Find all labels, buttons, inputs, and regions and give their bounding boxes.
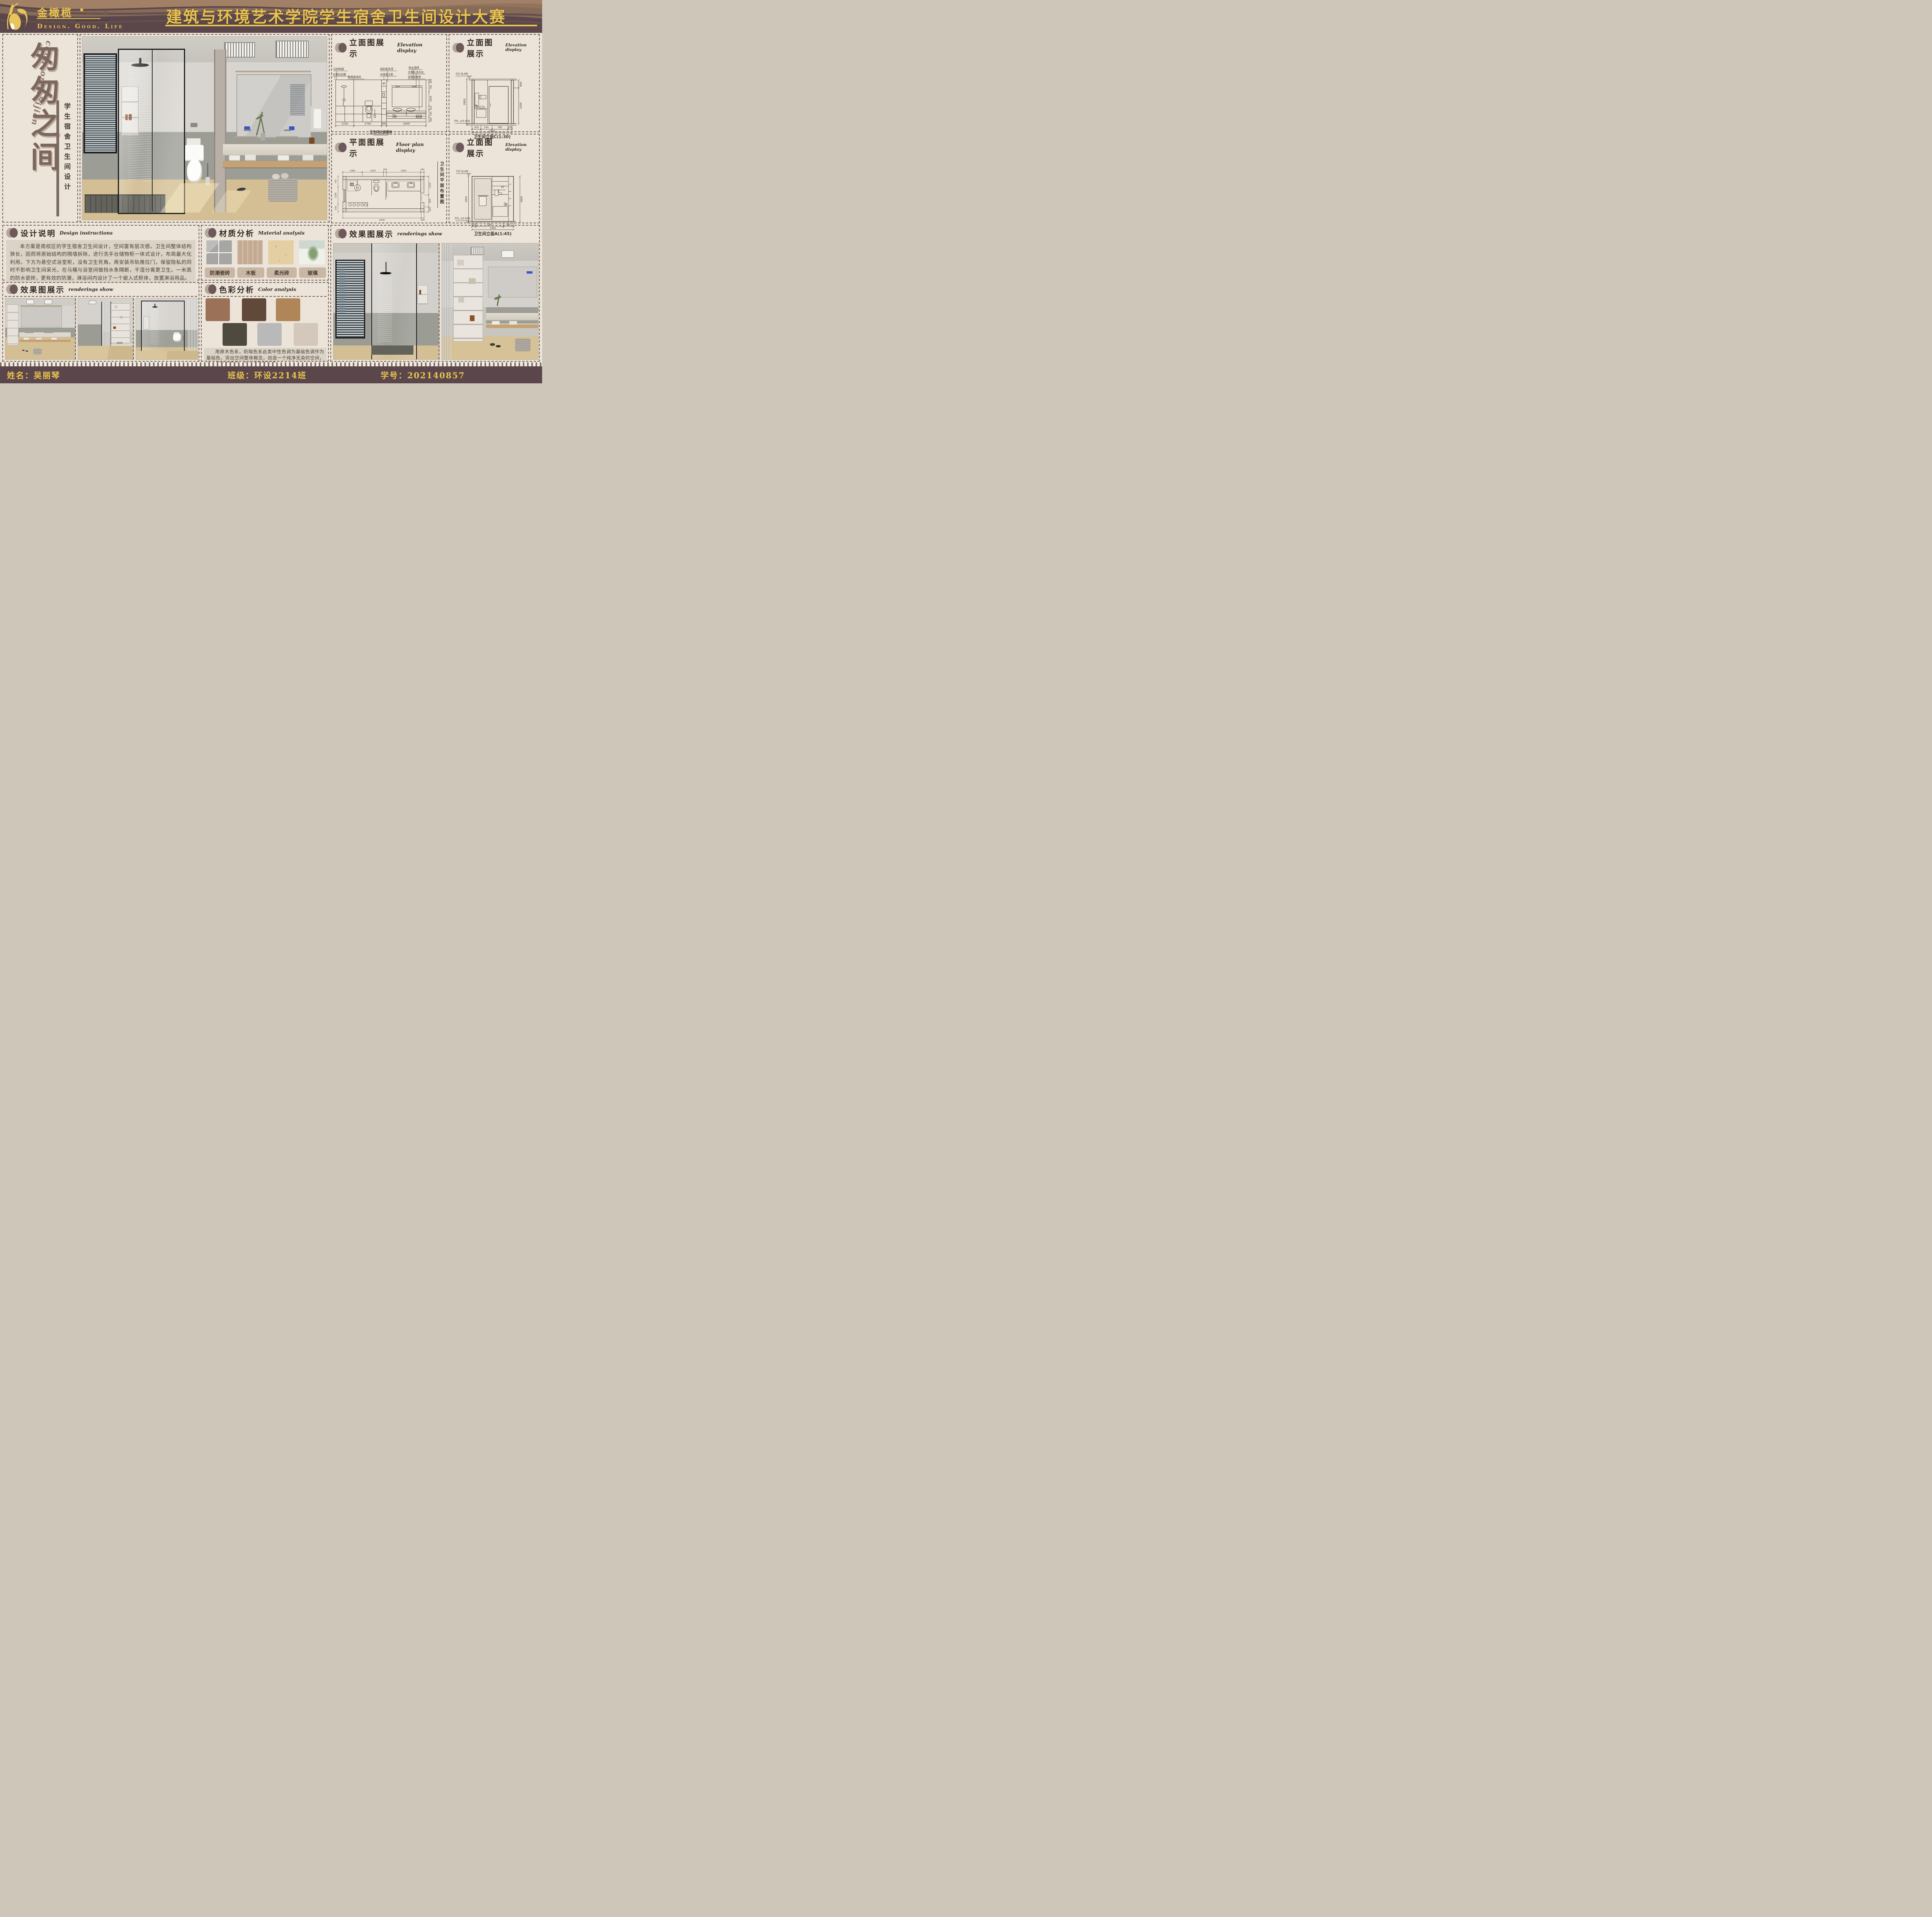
label-marble-basin: 大理石洗手台 [408,70,424,74]
towels-on-toilet [174,332,179,334]
towel-bar-right [311,106,312,132]
dim-1700: 1700 [364,122,371,125]
floor [78,346,133,359]
side-shelf-column [7,304,19,345]
towel-stack [36,338,41,340]
under-shelf [223,161,327,167]
ceiling-light-1 [224,42,255,58]
counter-bottle [309,138,315,144]
design-instructions-heading: 设计说明 Design instructions [3,226,199,239]
level-ch-slan: CH SLAN [456,72,468,75]
dim-1360: 1360 [350,170,355,172]
section-subtitle-en: Floor plan display [396,141,443,153]
material-swatch-glass [299,240,325,264]
material-label-tile: 防潮瓷砖 [205,267,235,278]
material-swatch-tile [206,240,232,264]
towel-roll-1 [272,174,280,179]
color-chip-1 [206,298,230,321]
shelf-bottle [470,315,475,321]
shelf-item [457,260,464,265]
section-dot-icon [208,228,216,238]
toilet [173,334,181,342]
label-stone-finish: 石材饰面 [333,67,344,71]
level-ffl: FFL ±0.000 [455,217,470,220]
section-title: 立面图展示 [467,136,502,158]
shower-glass-panel [118,49,185,214]
section-subtitle-en: renderings show [68,286,113,292]
section-subtitle-en: Elevation display [505,43,536,52]
section-dot-icon [456,143,464,152]
dim-2800-left: 2800 [465,196,468,202]
section-subtitle-en: renderings show [397,231,442,236]
basket [515,338,531,351]
dim-850: 850 [429,199,432,203]
dim-1320: 1320 [429,182,432,188]
brand-underline [37,18,100,19]
dim-2400: 2400 [403,122,410,125]
floor-plan-heading: 平面图展示 Floor plan display [332,134,446,159]
rendering-photo-main [82,37,327,220]
section-dot-icon [338,43,347,53]
color-chip-5 [257,323,282,346]
dim-310: 310 [430,106,432,110]
dim-2200: 2200 [519,102,522,109]
towel-stack [492,321,500,325]
main-calligraphy-title: 匆匆之间 [26,42,59,223]
dim-1030: 1030 [430,96,432,102]
elevation-a-panel: 立面图展示 Elevation display [449,134,540,223]
wall-faucet-1 [244,129,251,131]
material-analysis-heading: 材质分析 Material analysis [202,226,328,239]
under-shelf [19,340,71,342]
main-photo-panel [80,34,330,223]
title-underline [165,25,537,26]
ceiling-light-1 [471,247,484,255]
footer-student-id: 学号：202140857 [381,369,465,381]
shelf-item [120,316,123,318]
material-swatch-wood [237,240,263,264]
niche [143,316,149,330]
brand-dot-icon [80,9,83,11]
section-title: 设计说明 [20,227,56,238]
dim-350: 350 [429,207,432,211]
section-dot-icon [208,284,216,294]
toilet-bowl [187,160,202,182]
level-ch-slan: CH SLAN [456,170,468,173]
mirror-light-bar [20,305,62,306]
shelf-item [114,306,118,308]
rendering-photo-3 [136,298,198,359]
floor-plan-caption: 卫生间平面布置图 [437,162,445,208]
shower-head [380,272,391,275]
dim-200: 200 [430,79,432,83]
section-title: 效果图展示 [20,284,65,295]
fluted-panel [188,298,198,359]
shower-spray [378,276,392,343]
mirror-screen [527,271,532,274]
material-label-wood: 木板 [237,267,264,278]
section-dot-icon [456,43,464,53]
dim-2400: 2400 [401,170,406,172]
dim-2800-left: 2800 [463,99,466,105]
vanity-counter [486,313,538,321]
floor [136,351,198,359]
heading-divider [203,296,327,297]
dim-780: 780 [497,126,502,129]
material-analysis-panel: 材质分析 Material analysis 防潮瓷砖 木板 柔光砖 玻璃 [201,225,329,281]
floor-plan-drawing: 1360 1500 200 2400 240 5500 240 1320 850… [333,159,440,231]
fluted-glass-door [101,302,112,347]
rendering-photo-1 [5,298,76,359]
color-chip-2 [242,298,266,321]
elevation-a-heading: 立面图展示 Elevation display [449,134,539,159]
level-ffl: FFL ±0.000 [454,119,471,122]
section-title: 立面图展示 [467,36,502,59]
section-title: 效果图展示 [349,228,394,239]
label-aluminum-ceiling: 铝扣板吊顶 [380,67,393,71]
brand-subtitle: 设计大赛 [86,9,109,16]
dim-5500: 5500 [379,219,385,221]
towel-basket [268,178,298,202]
poster-title: 建筑与环境艺术学院学生宿舍卫生间设计大赛 [166,4,506,27]
dim-191: 191 [508,126,512,129]
left-title-panel: congcongzhijian 匆匆之间 学生宿舍卫生间设计 [2,34,78,223]
toilet-brush-handle [207,163,208,178]
shower-floor [371,345,413,355]
section-dot-icon [10,228,18,238]
ceiling-light [26,299,34,304]
elevation-b-heading: 立面图展示 Elevation display [332,35,446,60]
section-subtitle-en: Material analysis [258,230,304,236]
hanging-towel-right [314,108,321,128]
dim-700: 700 [430,85,432,89]
dim-429: 429 [474,126,479,129]
elevation-b-panel: 立面图展示 Elevation display [331,34,447,132]
footer-bar: 姓名：吴丽琴 班级：环设2214班 学号：202140857 [0,366,542,383]
dim-200: 200 [383,169,387,171]
renderings-right-panel: 效果图展示 renderings show [330,225,540,362]
vessel-sink-1 [24,330,34,333]
niche [418,285,428,304]
towel-stack [51,338,57,340]
towel-roll-2 [281,173,289,179]
section-subtitle-en: Elevation display [397,42,443,53]
section-title: 材质分析 [219,227,255,238]
design-instructions-panel: 设计说明 Design instructions 本方案是南校区的学生宿舍卫生间… [2,225,199,281]
footer-class: 班级：环设2214班 [228,369,306,381]
shower-arm [386,262,387,272]
basket [33,349,42,355]
towel-stack-4 [303,155,313,161]
color-chip-3 [276,298,300,321]
renderings-left-panel: 效果图展示 renderings show [2,282,199,362]
toilet-tank [185,145,204,162]
ceiling-light-2 [502,250,514,258]
towel-stack [24,338,29,340]
flush-plate [190,123,197,127]
color-analysis-body: 用原木色系，奶咖色系此类中性色调为基础色调作为基础色，突出空间整体概念，创造一个… [204,348,327,361]
design-instructions-body: 本方案是南校区的学生宿舍卫生间设计，空间富有层次感。卫生间整体结构狭长，因而将原… [6,240,196,282]
wall-faucet-2 [284,129,291,131]
section-dot-icon [10,284,18,294]
mirror-reflection-window [290,84,305,116]
mirror [21,306,62,327]
towel-stack-3 [278,155,289,161]
dim-300: 300 [381,122,386,125]
left-wall [78,298,101,346]
plant-vase [261,133,265,141]
material-label-glass: 玻璃 [299,267,326,278]
shelf-item [458,297,464,303]
olive-logo-icon [3,1,36,32]
sink [116,342,123,344]
elevation-c-panel: 立面图展示 Elevation display [449,34,540,132]
window-with-blinds [83,53,117,153]
vertical-subtitle: 学生宿舍卫生间设计 [62,103,71,219]
dim-535: 535 [430,111,432,116]
towel-stack [509,321,517,325]
color-analysis-heading: 色彩分析 Color analysis [202,283,328,296]
rendering-photo-5 [442,243,538,359]
brand-tagline: Design. Good. Life [37,22,124,30]
section-subtitle-en: Elevation display [505,143,536,152]
renderings-right-heading: 效果图展示 renderings show [331,226,539,240]
heading-divider [5,296,197,297]
dim-545: 545 [484,126,489,129]
slipper [496,345,501,348]
brand-subtitle-en: DESIGN COMPETITION [76,19,109,22]
dim-360: 360 [430,117,432,122]
label-marble-groove: 大理石拉槽 [333,73,346,76]
label-custom-cabinet: 定制浴室柜 [408,75,421,79]
footer-name: 姓名：吴丽琴 [7,369,60,381]
toilet-brush [183,336,184,340]
shower-spray [151,308,158,345]
color-analysis-panel: 色彩分析 Color analysis 用原木色系，奶咖色系此类中性色调为基础色… [201,282,329,362]
city-glimpse [339,267,345,313]
glass-divider [152,49,153,212]
dim-2800-right: 2800 [520,196,523,202]
under-shelf [486,325,538,328]
material-label-softbrick: 柔光砖 [267,267,297,278]
section-dot-icon [338,143,347,152]
label-wood-cabinet: 木饰面立柜 [380,73,393,76]
amber-bottle [419,290,421,294]
vessel-sink-2 [44,330,53,333]
brand-name: 金橄榄 [37,5,73,20]
color-chip-6 [294,323,318,346]
elevation-b-drawing: 石材饰面 大理石拉槽 玻璃淋浴间 铝扣板吊顶 木饰面立柜 防水瓷砖 大理石洗手台… [333,60,446,141]
color-chip-4 [223,323,247,346]
renderings-left-heading: 效果图展示 renderings show [3,283,199,296]
dim-240b: 240 [420,219,425,221]
section-title: 色彩分析 [219,284,255,295]
section-title: 立面图展示 [349,36,394,59]
mirror-light-bar [235,71,311,73]
design-instructions-text: 本方案是南校区的学生宿舍卫生间设计，空间富有层次感。卫生间整体结构狭长，因而将原… [10,243,192,282]
rendering-photo-4 [333,243,439,359]
towel-stack-1 [229,155,240,161]
slipper [22,350,25,351]
dim-1500: 1500 [370,170,376,172]
vanity-counter [223,144,327,156]
poster-root: 金橄榄 设计大赛 DESIGN COMPETITION Design. Good… [0,0,542,383]
section-dot-icon [338,229,347,238]
header-banner: 金橄榄 设计大赛 DESIGN COMPETITION Design. Good… [0,0,542,33]
floor-plan-panel: 平面图展示 Floor plan display [331,134,447,223]
dim-1946: 1946 [489,130,495,133]
label-glass-shower: 玻璃淋浴间 [348,75,361,79]
dim-1200: 1200 [335,192,337,198]
vertical-divider-bar [56,100,59,216]
vanity-counter [19,332,71,337]
shelf-item [469,278,476,284]
towels-on-toilet [187,138,201,145]
label-waterproof-tile: 防水瓷砖 [409,66,419,69]
material-swatch-softbrick [268,240,294,264]
towel-stack-2 [245,155,256,161]
dim-1100: 1100 [341,122,348,125]
section-subtitle-en: Color analysis [258,286,296,292]
shelf-bottle [113,327,116,329]
ceiling-light [89,301,96,304]
ceiling-light [44,299,52,304]
dim-735: 735 [335,179,337,184]
section-title: 平面图展示 [349,136,393,158]
section-subtitle-en: Design instructions [60,230,113,236]
fluted-glass-strip [442,243,451,359]
dim-240t: 240 [420,169,425,171]
dim-535: 535 [335,206,337,210]
ceiling-light-2 [276,41,309,58]
shelving-unit [111,303,130,343]
slipper [490,343,495,346]
footer-filmstrip-decor [0,362,542,366]
rendering-photo-2 [78,298,134,359]
elevation-c-drawing: CH SLAN FFL ±0.000 2800 600 2200 429 545… [451,60,538,140]
elevation-c-heading: 立面图展示 Elevation display [449,35,539,60]
dim-600: 600 [519,82,522,87]
